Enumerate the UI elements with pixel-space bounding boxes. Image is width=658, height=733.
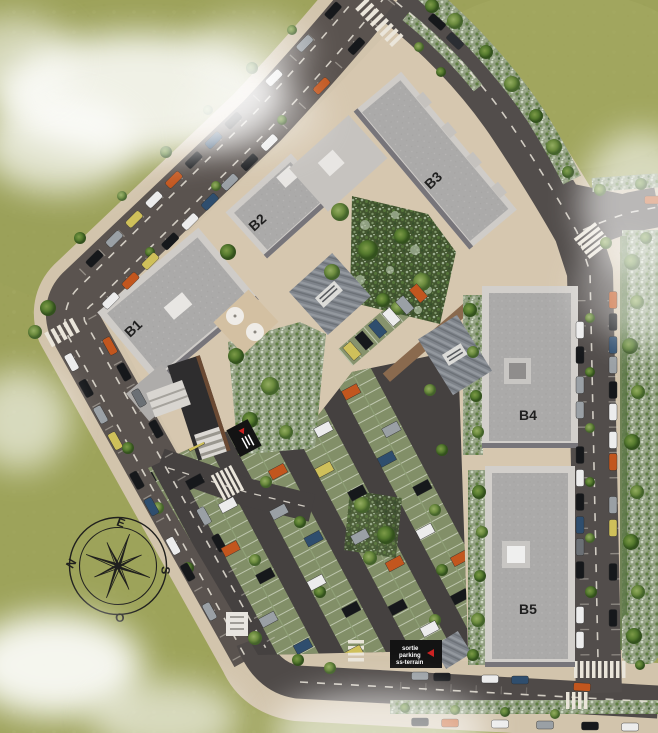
svg-text:sortie: sortie: [402, 646, 419, 652]
svg-text:B5: B5: [519, 601, 537, 617]
svg-text:S: S: [158, 566, 173, 575]
svg-text:ss-terrain: ss-terrain: [396, 660, 424, 666]
svg-text:B4: B4: [519, 407, 537, 423]
svg-text:parking: parking: [399, 653, 421, 659]
svg-text:O: O: [115, 610, 126, 625]
